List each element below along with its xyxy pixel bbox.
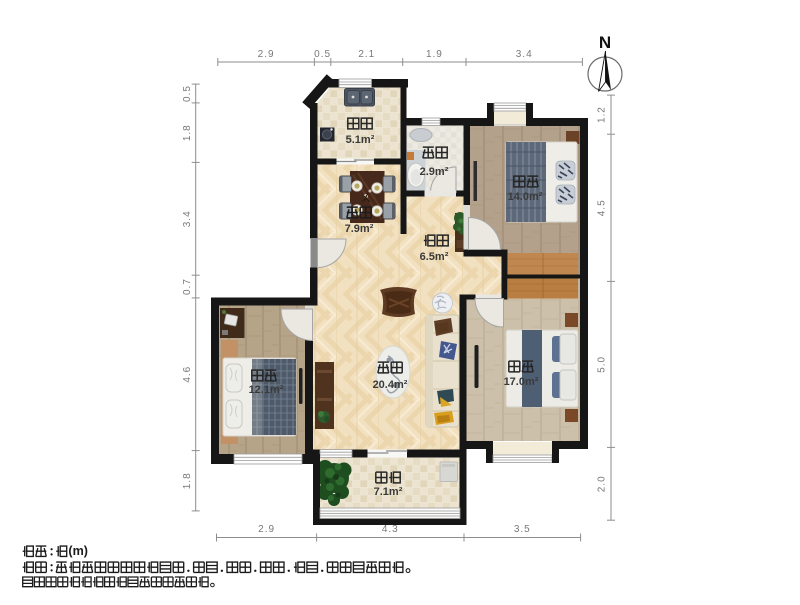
svg-text:4.5: 4.5: [597, 199, 608, 216]
svg-text:2.0: 2.0: [597, 475, 608, 492]
svg-text:2.1: 2.1: [358, 49, 375, 60]
svg-text:2.9: 2.9: [258, 524, 275, 535]
svg-text:3.4: 3.4: [516, 49, 533, 60]
svg-text:7.1m²: 7.1m²: [374, 486, 403, 498]
svg-text:0.5: 0.5: [182, 85, 193, 102]
svg-text:7.9m²: 7.9m²: [345, 223, 374, 235]
svg-text:3.4: 3.4: [182, 210, 193, 227]
svg-text:5.0: 5.0: [597, 356, 608, 373]
svg-text:1.9: 1.9: [426, 49, 443, 60]
svg-text:1.8: 1.8: [182, 124, 193, 141]
svg-text:2.9m²: 2.9m²: [420, 166, 449, 178]
svg-text:17.0m²: 17.0m²: [504, 376, 539, 388]
svg-text:12.1m²: 12.1m²: [249, 384, 284, 396]
svg-text:6.5m²: 6.5m²: [420, 251, 449, 263]
svg-text:3.5: 3.5: [514, 524, 531, 535]
svg-text:20.4m²: 20.4m²: [373, 379, 408, 391]
svg-text:4.6: 4.6: [182, 366, 193, 383]
svg-text:1.2: 1.2: [597, 106, 608, 123]
svg-text:5.1m²: 5.1m²: [346, 134, 375, 146]
svg-text:0.7: 0.7: [182, 278, 193, 295]
svg-text:2.9: 2.9: [258, 49, 275, 60]
svg-text:14.0m²: 14.0m²: [508, 191, 543, 203]
svg-text:0.5: 0.5: [314, 49, 331, 60]
svg-text:4.3: 4.3: [382, 524, 399, 535]
svg-text:N: N: [599, 33, 611, 52]
svg-text:1.8: 1.8: [182, 472, 193, 489]
svg-text:(m): (m): [68, 544, 88, 558]
